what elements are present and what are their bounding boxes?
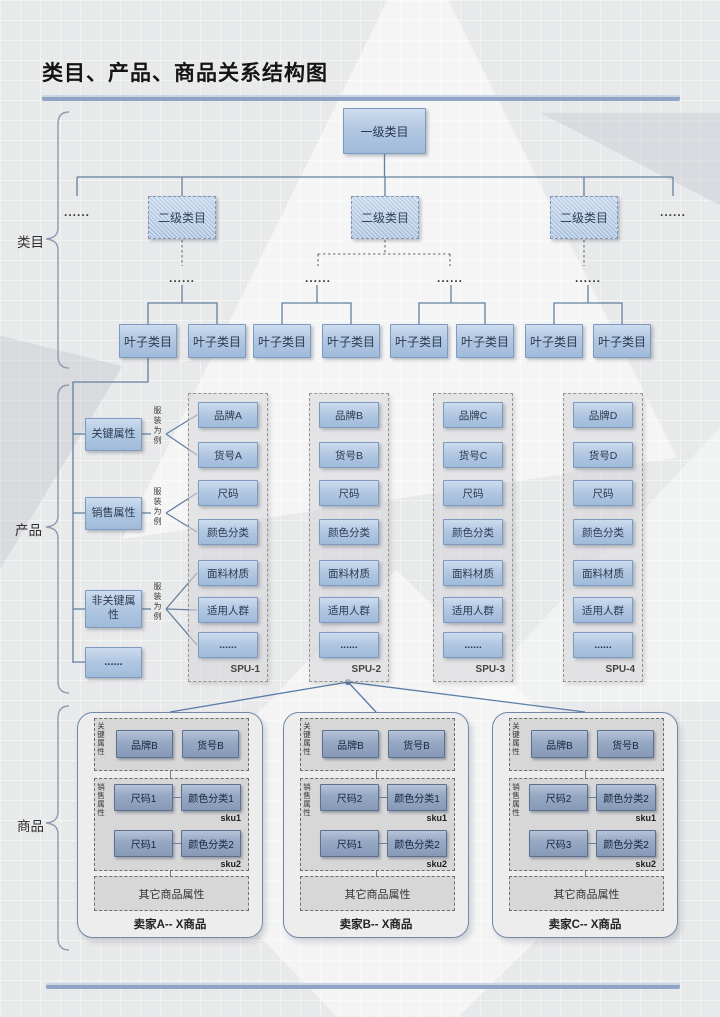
seller-card-b: 其它商品属性 关键属性 销售属性 品牌B 货号B 尺码2 颜色分类1 sku1 … bbox=[283, 712, 469, 938]
other-attr-section: 其它商品属性 bbox=[94, 876, 249, 911]
sku-row-connector bbox=[173, 843, 181, 844]
section-connector bbox=[376, 871, 377, 876]
leaf-category-box: 叶子类目 bbox=[188, 324, 246, 358]
spu-attr-box: 品牌C bbox=[443, 402, 503, 428]
sku-color-box: 颜色分类1 bbox=[181, 784, 241, 811]
seller-card-a: 其它商品属性 关键属性 销售属性 品牌B 货号B 尺码1 颜色分类1 sku1 … bbox=[77, 712, 263, 938]
root-category-box: 一级类目 bbox=[343, 108, 426, 154]
leaf-category-box: 叶子类目 bbox=[119, 324, 177, 358]
attr-group-sales: 销售属性 bbox=[85, 497, 142, 530]
leaf-category-box: 叶子类目 bbox=[456, 324, 514, 358]
seller-card-title: 卖家A-- X商品 bbox=[78, 916, 262, 932]
leaf-category-box: 叶子类目 bbox=[525, 324, 583, 358]
ellipsis-branch: ...... bbox=[575, 271, 601, 285]
sku-size-box: 尺码3 bbox=[529, 830, 588, 857]
spu-attr-box: ...... bbox=[319, 632, 379, 658]
leaf-category-box: 叶子类目 bbox=[390, 324, 448, 358]
spu-attr-box: ...... bbox=[573, 632, 633, 658]
level2-category-box: 二级类目 bbox=[550, 196, 618, 239]
spu-attr-box: 品牌B bbox=[319, 402, 379, 428]
spu-label: SPU-4 bbox=[606, 664, 635, 675]
spu-attr-box: 货号C bbox=[443, 442, 503, 468]
spu-attr-box: 面料材质 bbox=[319, 560, 379, 586]
sku-tag: sku1 bbox=[384, 813, 447, 823]
spu-attr-box: 面料材质 bbox=[198, 560, 258, 586]
category-tree-lines bbox=[77, 154, 673, 196]
item-no-box: 货号B bbox=[597, 730, 654, 758]
spu-attr-box: 尺码 bbox=[319, 480, 379, 506]
sku-size-box: 尺码2 bbox=[529, 784, 588, 811]
key-attr-vertical-label: 关键属性 bbox=[512, 722, 520, 756]
attr-group-nonkey: 非关键属性 bbox=[85, 590, 142, 628]
clothing-example-note: 服装为例 bbox=[153, 582, 161, 622]
section-connector bbox=[170, 771, 171, 778]
level2-category-box: 二级类目 bbox=[148, 196, 216, 239]
sku-tag: sku2 bbox=[384, 859, 447, 869]
diagram-canvas: 类目、产品、商品关系结构图 类目 产品 商品 一级类目 二级类目 二级类目 二级… bbox=[0, 0, 720, 1017]
spu-attr-box: 颜色分类 bbox=[198, 519, 258, 545]
spu-attr-box: ...... bbox=[443, 632, 503, 658]
spu-attr-box: 适用人群 bbox=[573, 597, 633, 623]
sku-size-box: 尺码2 bbox=[320, 784, 379, 811]
page-title: 类目、产品、商品关系结构图 bbox=[42, 57, 328, 87]
ellipsis-branch: ...... bbox=[305, 271, 331, 285]
spu-attr-box: 尺码 bbox=[198, 480, 258, 506]
sales-attr-vertical-label: 销售属性 bbox=[97, 783, 105, 817]
spu-label: SPU-3 bbox=[476, 664, 505, 675]
sku-tag: sku2 bbox=[593, 859, 656, 869]
spu-attr-box: ...... bbox=[198, 632, 258, 658]
brand-box: 品牌B bbox=[322, 730, 379, 758]
spu-attr-box: 适用人群 bbox=[198, 597, 258, 623]
spu-label: SPU-2 bbox=[352, 664, 381, 675]
other-attr-section: 其它商品属性 bbox=[509, 876, 664, 911]
sku-row-connector bbox=[588, 843, 596, 844]
sku-tag: sku1 bbox=[593, 813, 656, 823]
ellipsis-branch: ...... bbox=[437, 271, 463, 285]
section-connector bbox=[585, 871, 586, 876]
spu-card-fan-lines bbox=[170, 682, 585, 712]
spu-label: SPU-1 bbox=[231, 664, 260, 675]
sku-color-box: 颜色分类2 bbox=[596, 784, 656, 811]
spu-attr-box: 尺码 bbox=[443, 480, 503, 506]
spu-attr-box: 货号B bbox=[319, 442, 379, 468]
leaf-category-box: 叶子类目 bbox=[253, 324, 311, 358]
spu-attr-box: 品牌A bbox=[198, 402, 258, 428]
sku-row-connector bbox=[588, 797, 596, 798]
spu-attr-box: 颜色分类 bbox=[319, 519, 379, 545]
leaf-category-box: 叶子类目 bbox=[593, 324, 651, 358]
sku-color-box: 颜色分类2 bbox=[596, 830, 656, 857]
ellipsis-left: ...... bbox=[64, 205, 90, 219]
sku-color-box: 颜色分类2 bbox=[181, 830, 241, 857]
sku-row-connector bbox=[379, 797, 387, 798]
spu-attr-box: 面料材质 bbox=[573, 560, 633, 586]
dotted-branch-lines bbox=[182, 240, 584, 266]
spu-attr-box: 适用人群 bbox=[319, 597, 379, 623]
sales-attr-vertical-label: 销售属性 bbox=[303, 783, 311, 817]
section-connector bbox=[376, 771, 377, 778]
ellipsis-branch: ...... bbox=[169, 271, 195, 285]
leaf-bracket-lines bbox=[148, 285, 622, 324]
sales-attr-vertical-label: 销售属性 bbox=[512, 783, 520, 817]
spu-attr-box: 货号D bbox=[573, 442, 633, 468]
section-connector bbox=[170, 871, 171, 876]
section-label-category: 类目 bbox=[17, 231, 44, 251]
seller-card-c: 其它商品属性 关键属性 销售属性 品牌B 货号B 尺码2 颜色分类2 sku1 … bbox=[492, 712, 678, 938]
sku-color-box: 颜色分类1 bbox=[387, 784, 447, 811]
section-braces bbox=[46, 112, 69, 950]
spu-attr-box: 品牌D bbox=[573, 402, 633, 428]
sku-tag: sku1 bbox=[178, 813, 241, 823]
other-attr-section: 其它商品属性 bbox=[300, 876, 455, 911]
sku-size-box: 尺码1 bbox=[114, 830, 173, 857]
sku-color-box: 颜色分类2 bbox=[387, 830, 447, 857]
other-attr-label: 其它商品属性 bbox=[554, 886, 620, 902]
ellipsis-right: ...... bbox=[660, 205, 686, 219]
sku-size-box: 尺码1 bbox=[114, 784, 173, 811]
attr-group-more: ...... bbox=[85, 647, 142, 678]
spu-attr-box: 面料材质 bbox=[443, 560, 503, 586]
item-no-box: 货号B bbox=[388, 730, 445, 758]
leaf-category-box: 叶子类目 bbox=[322, 324, 380, 358]
sku-size-box: 尺码1 bbox=[320, 830, 379, 857]
brand-box: 品牌B bbox=[531, 730, 588, 758]
attr-group-key: 关键属性 bbox=[85, 418, 142, 451]
other-attr-label: 其它商品属性 bbox=[139, 886, 205, 902]
key-attr-vertical-label: 关键属性 bbox=[97, 722, 105, 756]
spu-attr-box: 颜色分类 bbox=[443, 519, 503, 545]
sku-tag: sku2 bbox=[178, 859, 241, 869]
seller-card-title: 卖家B-- X商品 bbox=[284, 916, 468, 932]
spu-attr-box: 货号A bbox=[198, 442, 258, 468]
spu-attr-box: 颜色分类 bbox=[573, 519, 633, 545]
spu-attr-box: 尺码 bbox=[573, 480, 633, 506]
section-label-product: 产品 bbox=[15, 519, 42, 539]
sku-row-connector bbox=[173, 797, 181, 798]
key-attr-vertical-label: 关键属性 bbox=[303, 722, 311, 756]
level2-category-box: 二级类目 bbox=[351, 196, 419, 239]
spu-attr-box: 适用人群 bbox=[443, 597, 503, 623]
item-no-box: 货号B bbox=[182, 730, 239, 758]
footer-rule bbox=[46, 983, 680, 989]
title-rule bbox=[42, 95, 680, 101]
clothing-example-note: 服装为例 bbox=[153, 406, 161, 446]
brand-box: 品牌B bbox=[116, 730, 173, 758]
section-label-commodity: 商品 bbox=[17, 815, 44, 835]
other-attr-label: 其它商品属性 bbox=[345, 886, 411, 902]
clothing-example-note: 服装为例 bbox=[153, 487, 161, 527]
seller-card-title: 卖家C-- X商品 bbox=[493, 916, 677, 932]
sku-row-connector bbox=[379, 843, 387, 844]
section-connector bbox=[585, 771, 586, 778]
